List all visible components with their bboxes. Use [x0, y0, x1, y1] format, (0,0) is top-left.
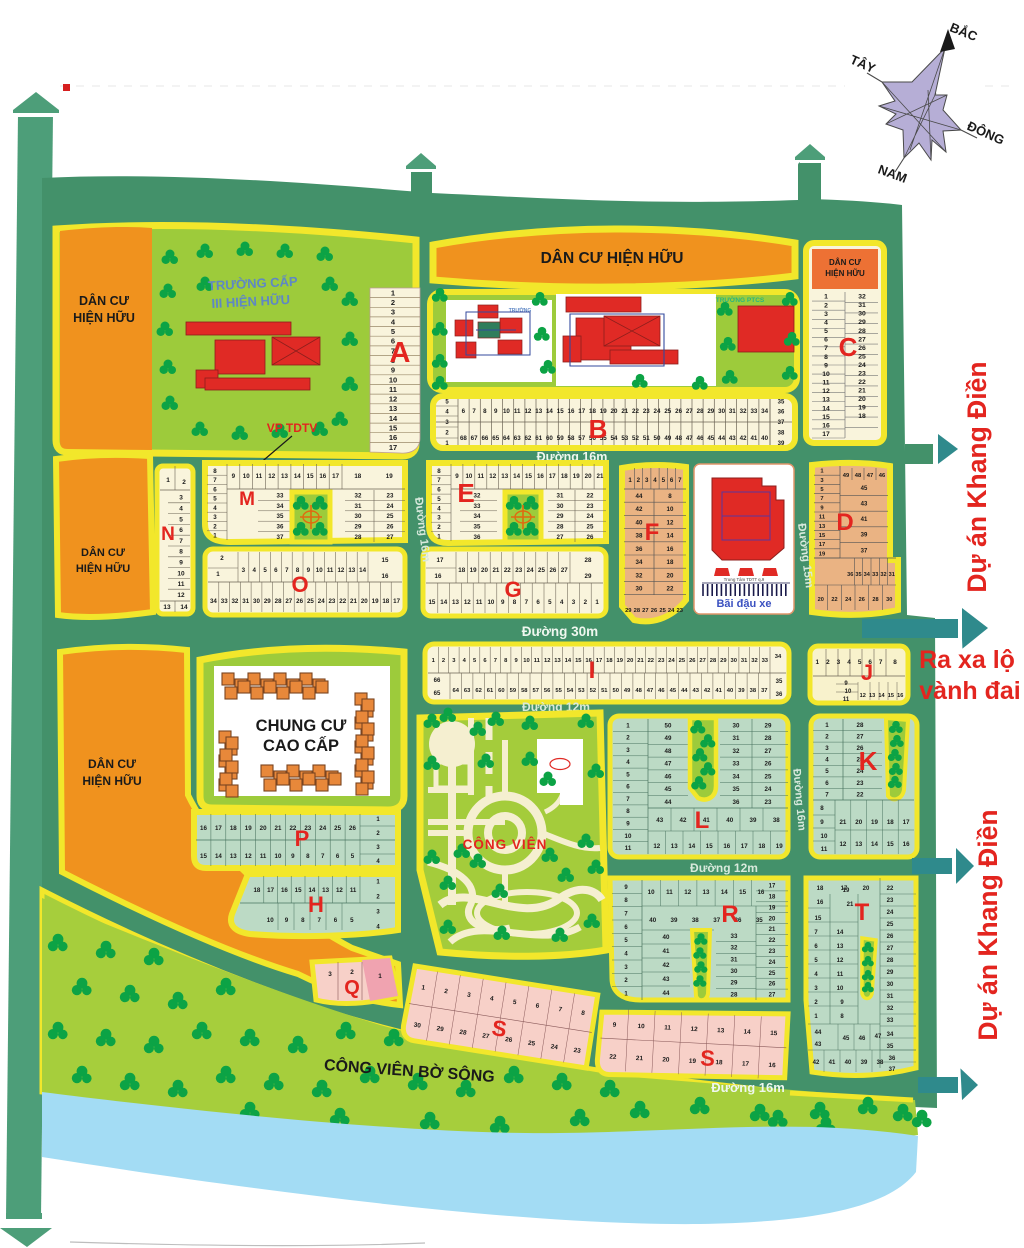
svg-text:14: 14	[688, 843, 695, 850]
svg-text:22: 22	[609, 1054, 617, 1061]
svg-text:4: 4	[213, 505, 217, 512]
svg-text:38: 38	[778, 431, 785, 437]
svg-text:23: 23	[887, 898, 894, 904]
svg-text:27: 27	[561, 567, 568, 574]
svg-text:5: 5	[825, 768, 829, 775]
svg-text:10: 10	[625, 833, 632, 840]
svg-text:15: 15	[307, 473, 314, 480]
svg-text:26: 26	[296, 598, 303, 605]
svg-text:16: 16	[435, 573, 442, 580]
svg-text:49: 49	[843, 473, 850, 479]
svg-text:22: 22	[339, 598, 346, 605]
svg-text:31: 31	[242, 598, 249, 605]
svg-text:S: S	[700, 1045, 716, 1071]
svg-text:66: 66	[481, 435, 488, 442]
svg-text:11: 11	[514, 408, 521, 415]
svg-text:30: 30	[253, 598, 260, 605]
svg-text:8: 8	[213, 468, 217, 475]
svg-text:7: 7	[437, 477, 441, 484]
svg-text:2: 2	[637, 477, 641, 484]
svg-text:17: 17	[578, 408, 585, 415]
svg-text:26: 26	[387, 524, 394, 531]
svg-text:30: 30	[355, 513, 362, 520]
svg-text:23: 23	[328, 598, 335, 605]
svg-text:15: 15	[819, 533, 826, 539]
svg-text:18: 18	[667, 559, 674, 566]
svg-text:14: 14	[294, 473, 301, 480]
svg-text:1: 1	[825, 722, 829, 729]
svg-text:27: 27	[642, 608, 648, 614]
svg-text:27: 27	[858, 336, 866, 343]
svg-text:7: 7	[879, 659, 883, 666]
svg-text:60: 60	[546, 435, 553, 442]
svg-text:3: 3	[824, 311, 828, 318]
svg-text:24: 24	[845, 597, 852, 603]
svg-text:5: 5	[179, 516, 183, 523]
svg-text:25: 25	[887, 922, 894, 928]
svg-text:12: 12	[389, 395, 397, 404]
svg-text:14: 14	[513, 473, 520, 480]
svg-text:15: 15	[815, 916, 822, 922]
svg-text:6: 6	[179, 527, 183, 534]
svg-text:43: 43	[861, 502, 868, 508]
svg-text:29: 29	[625, 608, 632, 614]
svg-text:37: 37	[713, 917, 720, 924]
svg-text:4: 4	[626, 759, 630, 766]
svg-text:23: 23	[587, 503, 594, 510]
svg-text:33: 33	[762, 658, 769, 664]
svg-text:11: 11	[819, 515, 826, 521]
svg-text:21: 21	[847, 902, 854, 908]
svg-text:2: 2	[825, 734, 829, 741]
svg-text:19: 19	[573, 473, 580, 480]
svg-text:7: 7	[525, 599, 529, 606]
svg-text:18: 18	[769, 895, 776, 901]
svg-text:18: 18	[758, 843, 765, 850]
svg-text:16: 16	[537, 473, 544, 480]
svg-text:9: 9	[820, 819, 824, 826]
svg-text:7: 7	[824, 345, 828, 352]
svg-text:6: 6	[670, 477, 674, 484]
svg-text:6: 6	[825, 780, 829, 787]
svg-text:6: 6	[824, 337, 828, 344]
svg-text:17: 17	[596, 658, 602, 664]
svg-text:33: 33	[887, 1018, 894, 1024]
svg-text:1: 1	[391, 288, 395, 297]
svg-text:59: 59	[510, 688, 517, 694]
svg-text:35: 35	[776, 679, 783, 685]
svg-text:4: 4	[825, 757, 829, 764]
svg-text:15: 15	[887, 841, 894, 848]
svg-text:49: 49	[665, 735, 672, 742]
svg-text:16: 16	[389, 433, 397, 442]
svg-text:14: 14	[871, 841, 878, 848]
svg-text:12: 12	[177, 592, 185, 599]
svg-text:13: 13	[671, 843, 678, 850]
svg-text:6: 6	[274, 567, 278, 574]
svg-text:11: 11	[478, 473, 485, 480]
svg-text:4: 4	[824, 319, 828, 326]
svg-text:8: 8	[626, 808, 630, 815]
svg-text:22: 22	[648, 658, 654, 664]
svg-text:13: 13	[554, 658, 561, 664]
svg-text:1: 1	[824, 294, 828, 301]
svg-text:24: 24	[587, 513, 594, 520]
svg-text:Đường 16m: Đường 16m	[711, 1080, 785, 1095]
svg-text:49: 49	[624, 688, 631, 694]
svg-text:15: 15	[739, 889, 746, 896]
svg-text:11: 11	[178, 581, 185, 588]
svg-text:11: 11	[822, 380, 829, 387]
svg-text:9: 9	[285, 917, 289, 924]
svg-text:29: 29	[707, 408, 714, 415]
svg-text:12: 12	[860, 693, 866, 699]
svg-text:12: 12	[822, 388, 830, 395]
svg-text:Q: Q	[344, 977, 360, 999]
svg-text:49: 49	[664, 435, 671, 442]
svg-text:11: 11	[534, 658, 541, 664]
svg-text:34: 34	[474, 513, 481, 520]
svg-text:2: 2	[213, 523, 217, 530]
svg-text:17: 17	[769, 884, 776, 890]
svg-text:26: 26	[549, 567, 556, 574]
svg-text:30: 30	[887, 982, 894, 988]
svg-text:24: 24	[769, 960, 776, 966]
svg-text:25: 25	[387, 513, 394, 520]
svg-text:40: 40	[649, 917, 656, 924]
svg-text:11: 11	[843, 697, 850, 703]
svg-text:2: 2	[584, 599, 588, 606]
svg-text:62: 62	[524, 435, 531, 442]
svg-text:Dự án Khang Điền: Dự án Khang Điền	[962, 361, 992, 592]
svg-text:47: 47	[647, 688, 653, 694]
svg-text:5: 5	[437, 496, 441, 503]
svg-text:43: 43	[729, 435, 736, 442]
svg-text:Dự án Khang Điền: Dự án Khang Điền	[973, 809, 1003, 1040]
svg-text:32: 32	[858, 294, 866, 301]
svg-text:63: 63	[464, 688, 471, 694]
svg-text:43: 43	[692, 688, 699, 694]
svg-text:10: 10	[648, 889, 655, 896]
svg-text:9: 9	[824, 362, 828, 369]
svg-text:18: 18	[382, 598, 389, 605]
svg-text:34: 34	[277, 503, 284, 510]
svg-text:R: R	[721, 901, 738, 928]
svg-text:17: 17	[389, 443, 397, 452]
svg-text:27: 27	[699, 658, 705, 664]
svg-text:24: 24	[318, 598, 325, 605]
svg-text:61: 61	[535, 435, 542, 442]
svg-text:2: 2	[626, 735, 630, 742]
svg-text:4: 4	[653, 477, 657, 484]
svg-text:26: 26	[887, 934, 894, 940]
svg-text:Đường 30m: Đường 30m	[522, 624, 598, 639]
svg-text:35: 35	[733, 786, 740, 793]
svg-text:33: 33	[731, 933, 738, 940]
svg-text:24: 24	[319, 825, 326, 832]
svg-text:40: 40	[845, 1060, 852, 1066]
svg-text:57: 57	[532, 688, 538, 694]
svg-text:41: 41	[715, 688, 722, 694]
svg-text:21: 21	[637, 658, 644, 664]
svg-text:47: 47	[875, 1034, 882, 1040]
svg-text:17: 17	[549, 473, 556, 480]
svg-text:10: 10	[667, 506, 674, 513]
svg-text:34: 34	[636, 559, 643, 566]
svg-text:38: 38	[773, 817, 780, 824]
svg-text:28: 28	[887, 958, 894, 964]
svg-text:14: 14	[565, 658, 572, 664]
svg-text:3: 3	[328, 971, 332, 978]
svg-text:27: 27	[557, 534, 564, 541]
svg-text:61: 61	[487, 688, 494, 694]
svg-text:47: 47	[665, 761, 672, 768]
svg-text:CÔNG VIÊN: CÔNG VIÊN	[463, 837, 548, 852]
svg-text:47: 47	[867, 473, 873, 479]
svg-text:31: 31	[887, 994, 894, 1000]
svg-text:25: 25	[765, 773, 772, 780]
svg-text:67: 67	[471, 435, 478, 442]
svg-text:1: 1	[437, 534, 441, 541]
svg-text:1: 1	[213, 533, 217, 540]
svg-text:42: 42	[636, 506, 643, 513]
svg-text:11: 11	[256, 473, 263, 480]
svg-text:18: 18	[253, 887, 260, 894]
svg-text:5: 5	[263, 567, 267, 574]
svg-text:DÂN CƯ: DÂN CƯ	[88, 756, 136, 771]
svg-text:15: 15	[295, 887, 302, 894]
svg-text:1: 1	[216, 571, 220, 578]
svg-text:42: 42	[704, 688, 710, 694]
svg-text:33: 33	[221, 598, 228, 605]
svg-text:38: 38	[750, 688, 757, 694]
svg-text:5: 5	[350, 917, 354, 924]
svg-text:45: 45	[670, 688, 677, 694]
svg-text:K: K	[859, 746, 878, 776]
svg-text:56: 56	[544, 688, 551, 694]
svg-text:10: 10	[637, 1023, 645, 1030]
svg-text:1: 1	[626, 722, 630, 729]
svg-text:23: 23	[515, 567, 522, 574]
svg-text:31: 31	[557, 492, 564, 499]
svg-text:24: 24	[887, 910, 894, 916]
svg-text:19: 19	[245, 825, 252, 832]
svg-text:2: 2	[182, 479, 186, 486]
svg-text:17: 17	[819, 542, 825, 548]
svg-text:30: 30	[557, 503, 564, 510]
svg-text:6: 6	[462, 408, 466, 415]
svg-text:12: 12	[839, 841, 846, 848]
svg-text:26: 26	[675, 408, 682, 415]
svg-text:HIỆN HỮU: HIỆN HỮU	[73, 310, 135, 325]
svg-text:47: 47	[686, 435, 693, 442]
svg-text:B: B	[589, 414, 608, 444]
svg-text:16: 16	[897, 693, 903, 699]
svg-text:11: 11	[625, 845, 632, 852]
svg-text:38: 38	[692, 917, 699, 924]
svg-text:23: 23	[769, 949, 776, 955]
svg-text:38: 38	[636, 533, 643, 540]
svg-text:H: H	[308, 892, 324, 917]
svg-text:8: 8	[301, 917, 305, 924]
svg-text:58: 58	[568, 435, 575, 442]
svg-text:17: 17	[742, 1061, 750, 1068]
svg-text:20: 20	[769, 916, 776, 922]
svg-text:22: 22	[887, 886, 894, 892]
svg-text:28: 28	[858, 328, 866, 335]
svg-text:26: 26	[769, 982, 776, 988]
svg-text:52: 52	[590, 688, 596, 694]
svg-text:32: 32	[887, 1006, 894, 1012]
svg-text:53: 53	[621, 435, 628, 442]
svg-text:31: 31	[733, 735, 740, 742]
svg-text:9: 9	[232, 473, 236, 480]
svg-text:62: 62	[475, 688, 481, 694]
svg-text:16: 16	[200, 825, 207, 832]
svg-text:44: 44	[665, 799, 672, 806]
svg-text:35: 35	[756, 917, 763, 924]
svg-text:3: 3	[572, 599, 576, 606]
svg-text:32: 32	[636, 572, 643, 579]
svg-text:11: 11	[664, 1024, 672, 1031]
svg-text:16: 16	[903, 841, 910, 848]
svg-text:7: 7	[825, 791, 829, 798]
svg-text:17: 17	[332, 473, 339, 480]
svg-text:7: 7	[179, 538, 183, 545]
svg-text:8: 8	[893, 659, 897, 666]
svg-text:15: 15	[822, 414, 830, 421]
svg-text:30: 30	[636, 586, 643, 593]
svg-text:18: 18	[858, 413, 866, 420]
svg-text:13: 13	[822, 397, 830, 404]
svg-text:21: 21	[636, 1055, 644, 1062]
svg-text:13: 13	[348, 567, 355, 574]
svg-text:C: C	[839, 332, 858, 362]
svg-text:4: 4	[179, 506, 183, 513]
svg-text:17: 17	[903, 819, 910, 826]
svg-text:5: 5	[548, 599, 552, 606]
svg-text:18: 18	[817, 886, 824, 892]
svg-text:7: 7	[285, 567, 289, 574]
svg-text:21: 21	[621, 408, 628, 415]
svg-text:9: 9	[494, 408, 498, 415]
svg-text:2: 2	[220, 555, 224, 562]
svg-text:21: 21	[597, 473, 604, 480]
svg-text:12: 12	[489, 473, 496, 480]
svg-text:65: 65	[434, 691, 441, 697]
svg-text:13: 13	[869, 693, 875, 699]
svg-text:A: A	[390, 337, 411, 369]
svg-text:2: 2	[391, 298, 395, 307]
svg-text:12: 12	[464, 599, 471, 606]
svg-text:42: 42	[740, 435, 747, 442]
svg-text:9: 9	[179, 560, 183, 567]
svg-text:21: 21	[350, 598, 357, 605]
svg-text:28: 28	[857, 722, 864, 729]
svg-text:10: 10	[267, 917, 274, 924]
svg-text:39: 39	[861, 533, 868, 539]
svg-text:12: 12	[245, 853, 252, 860]
svg-text:F: F	[645, 519, 660, 546]
svg-text:18: 18	[561, 473, 568, 480]
svg-text:6: 6	[536, 599, 540, 606]
svg-text:40: 40	[726, 817, 733, 824]
svg-text:28: 28	[634, 608, 641, 614]
svg-text:7: 7	[317, 917, 321, 924]
svg-text:6: 6	[213, 486, 217, 493]
svg-text:11: 11	[389, 385, 397, 394]
svg-text:12: 12	[544, 658, 550, 664]
svg-text:28: 28	[731, 991, 738, 998]
svg-text:34: 34	[864, 572, 871, 578]
svg-text:40: 40	[727, 688, 733, 694]
svg-text:18: 18	[715, 1059, 723, 1066]
svg-text:28: 28	[765, 735, 772, 742]
svg-text:25: 25	[664, 408, 671, 415]
svg-text:37: 37	[277, 534, 284, 541]
svg-text:23: 23	[676, 608, 683, 614]
svg-text:25: 25	[769, 971, 776, 977]
svg-text:10: 10	[177, 570, 185, 577]
svg-text:30: 30	[730, 658, 736, 664]
svg-text:42: 42	[813, 1060, 820, 1066]
svg-text:43: 43	[815, 1042, 822, 1048]
svg-text:22: 22	[504, 567, 511, 574]
svg-text:19: 19	[386, 473, 393, 480]
svg-text:20: 20	[858, 396, 866, 403]
svg-text:20: 20	[863, 886, 870, 892]
svg-text:23: 23	[643, 408, 650, 415]
svg-text:6: 6	[336, 853, 340, 860]
svg-text:34: 34	[887, 1032, 894, 1038]
svg-text:17: 17	[741, 843, 748, 850]
svg-text:32: 32	[731, 945, 738, 952]
svg-text:35: 35	[887, 1044, 894, 1050]
svg-text:25: 25	[334, 825, 341, 832]
svg-text:16: 16	[382, 573, 389, 580]
svg-text:34: 34	[761, 408, 768, 415]
svg-text:13: 13	[452, 599, 459, 606]
svg-text:26: 26	[765, 761, 772, 768]
svg-text:11: 11	[837, 972, 844, 978]
svg-text:20: 20	[585, 473, 592, 480]
svg-text:3: 3	[837, 659, 841, 666]
svg-text:33: 33	[733, 761, 740, 768]
svg-text:25: 25	[679, 658, 686, 664]
svg-text:3: 3	[391, 308, 395, 317]
svg-text:4: 4	[560, 599, 564, 606]
svg-text:10: 10	[523, 658, 529, 664]
svg-text:28: 28	[710, 658, 717, 664]
svg-text:30: 30	[718, 408, 725, 415]
svg-text:64: 64	[452, 688, 459, 694]
svg-text:24: 24	[387, 503, 394, 510]
svg-text:19: 19	[769, 905, 776, 911]
svg-text:48: 48	[855, 473, 862, 479]
svg-text:19: 19	[843, 888, 850, 894]
svg-text:17: 17	[822, 431, 830, 438]
svg-text:29: 29	[731, 980, 738, 987]
svg-text:19: 19	[871, 819, 878, 826]
svg-text:Bãi đậu xe: Bãi đậu xe	[716, 598, 771, 610]
svg-text:18: 18	[230, 825, 237, 832]
svg-text:5: 5	[824, 328, 828, 335]
svg-text:12: 12	[268, 473, 275, 480]
svg-text:46: 46	[859, 1036, 866, 1042]
svg-text:39: 39	[738, 688, 745, 694]
svg-text:19: 19	[372, 598, 379, 605]
svg-text:vành đai: vành đai	[919, 677, 1020, 705]
